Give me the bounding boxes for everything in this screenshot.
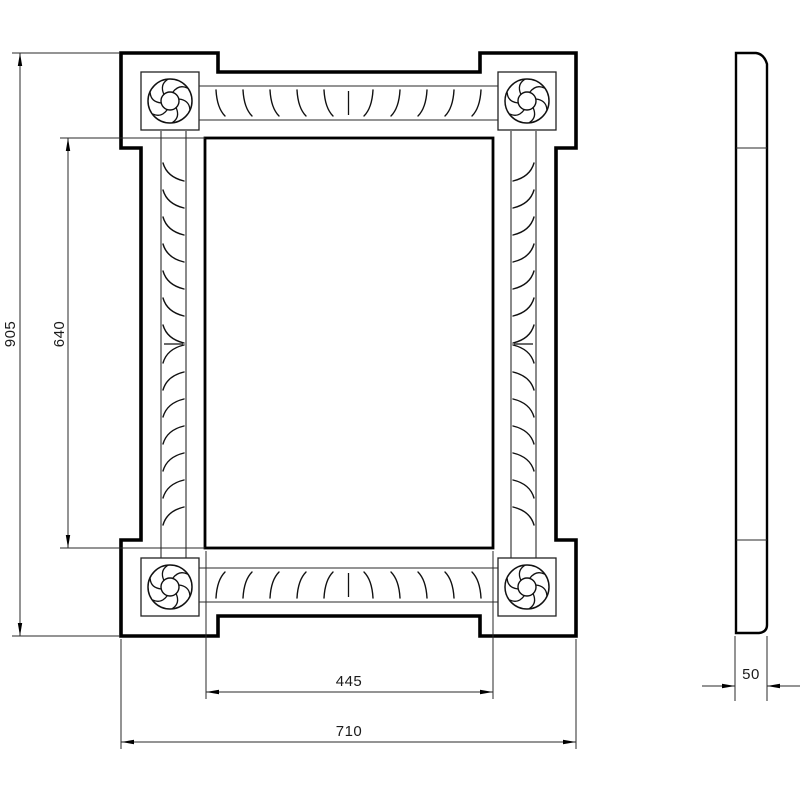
corner-panel [141, 558, 199, 616]
carving-hatch [513, 217, 534, 235]
carving-hatch [513, 244, 534, 262]
carving-hatch [270, 572, 279, 598]
carving-hatch [513, 453, 534, 471]
rosette-petal [507, 93, 518, 103]
carving-hatch [243, 90, 252, 116]
carving-hatch [163, 163, 184, 181]
carved-band-horizontal [199, 568, 498, 602]
carving-hatch [513, 298, 534, 316]
dimension-arrow [66, 535, 70, 548]
rosette-petal [173, 573, 187, 579]
carving-hatch [270, 90, 279, 116]
carving-hatch [513, 325, 534, 343]
rosette-petal [153, 596, 167, 602]
mirror-opening [205, 138, 493, 548]
carving-hatch [163, 217, 184, 235]
dimension-arrow [767, 684, 780, 688]
carving-hatch [163, 298, 184, 316]
carving-hatch [163, 372, 184, 390]
carved-band-vertical [161, 131, 186, 558]
dimensions: 90564044571050 [2, 53, 800, 749]
rosette [505, 79, 549, 123]
carving-hatch [163, 345, 184, 363]
rosette-petal [150, 579, 161, 589]
carving-hatch [324, 90, 333, 116]
carving-hatch [163, 453, 184, 471]
carved-band-horizontal [199, 86, 498, 120]
dimension-overall-width: 710 [121, 639, 576, 749]
rosette [148, 565, 192, 609]
dimension-arrow [563, 740, 576, 744]
carving-hatch [163, 190, 184, 208]
carving-hatch [297, 90, 306, 116]
carving-hatch [163, 271, 184, 289]
carving-hatch [324, 572, 333, 598]
rosette [505, 565, 549, 609]
carving-hatch [163, 480, 184, 498]
dimension-label-mirror-height: 640 [51, 321, 68, 348]
carving-hatch [472, 572, 481, 598]
carving-hatch [364, 572, 373, 598]
dimension-mirror-width: 445 [206, 551, 493, 699]
dimension-arrow [206, 690, 219, 694]
dimension-arrow [722, 684, 735, 688]
carving-hatch [163, 244, 184, 262]
rosette-petal [530, 87, 544, 93]
carving-hatch [472, 90, 481, 116]
side-profile-outline [736, 53, 767, 633]
side-view [736, 53, 767, 633]
rosette-petal [150, 93, 161, 103]
rosette-petal [179, 99, 190, 109]
carving-hatch [418, 90, 427, 116]
carving-hatch [513, 372, 534, 390]
corner-panel [141, 72, 199, 130]
carving-hatch [445, 572, 454, 598]
dimension-label-overall-height: 905 [2, 321, 19, 348]
dimension-depth: 50 [702, 636, 800, 701]
carving-hatch [513, 507, 534, 525]
carving-hatch [163, 426, 184, 444]
carving-hatch [163, 507, 184, 525]
carving-hatch [513, 399, 534, 417]
rosette-petal [173, 87, 187, 93]
carving-hatch [513, 345, 534, 363]
dimension-arrow [480, 690, 493, 694]
carving-hatch [513, 271, 534, 289]
rosette [148, 79, 192, 123]
rosette-petal [153, 110, 167, 116]
dimension-label-overall-width: 710 [336, 723, 363, 740]
corner-panel [498, 72, 556, 130]
rosette-petal [179, 585, 190, 595]
corner-panel [498, 558, 556, 616]
carving-hatch [391, 572, 400, 598]
carving-hatch [297, 572, 306, 598]
carving-hatch [391, 90, 400, 116]
rosette-petal [536, 585, 547, 595]
rosette-petal [510, 596, 524, 602]
carving-hatch [163, 325, 184, 343]
dimension-arrow [18, 53, 22, 66]
front-view [121, 53, 576, 636]
carving-hatch [364, 90, 373, 116]
carving-hatch [163, 399, 184, 417]
dimension-label-depth: 50 [742, 666, 760, 683]
rosette-petal [536, 99, 547, 109]
technical-drawing-canvas: 90564044571050 [0, 0, 800, 800]
dimension-label-mirror-width: 445 [336, 673, 363, 690]
carving-hatch [216, 572, 225, 598]
carving-hatch [513, 163, 534, 181]
carving-hatch [513, 426, 534, 444]
drawing-svg: 90564044571050 [0, 0, 800, 800]
carving-hatch [418, 572, 427, 598]
carved-band-vertical [511, 131, 536, 558]
dimension-arrow [66, 138, 70, 151]
carving-hatch [513, 480, 534, 498]
carving-hatch [243, 572, 252, 598]
rosette-petal [507, 579, 518, 589]
carving-hatch [513, 190, 534, 208]
rosette-petal [530, 573, 544, 579]
carving-hatch [216, 90, 225, 116]
dimension-arrow [18, 623, 22, 636]
carving-hatch [445, 90, 454, 116]
dimension-arrow [121, 740, 134, 744]
rosette-petal [510, 110, 524, 116]
